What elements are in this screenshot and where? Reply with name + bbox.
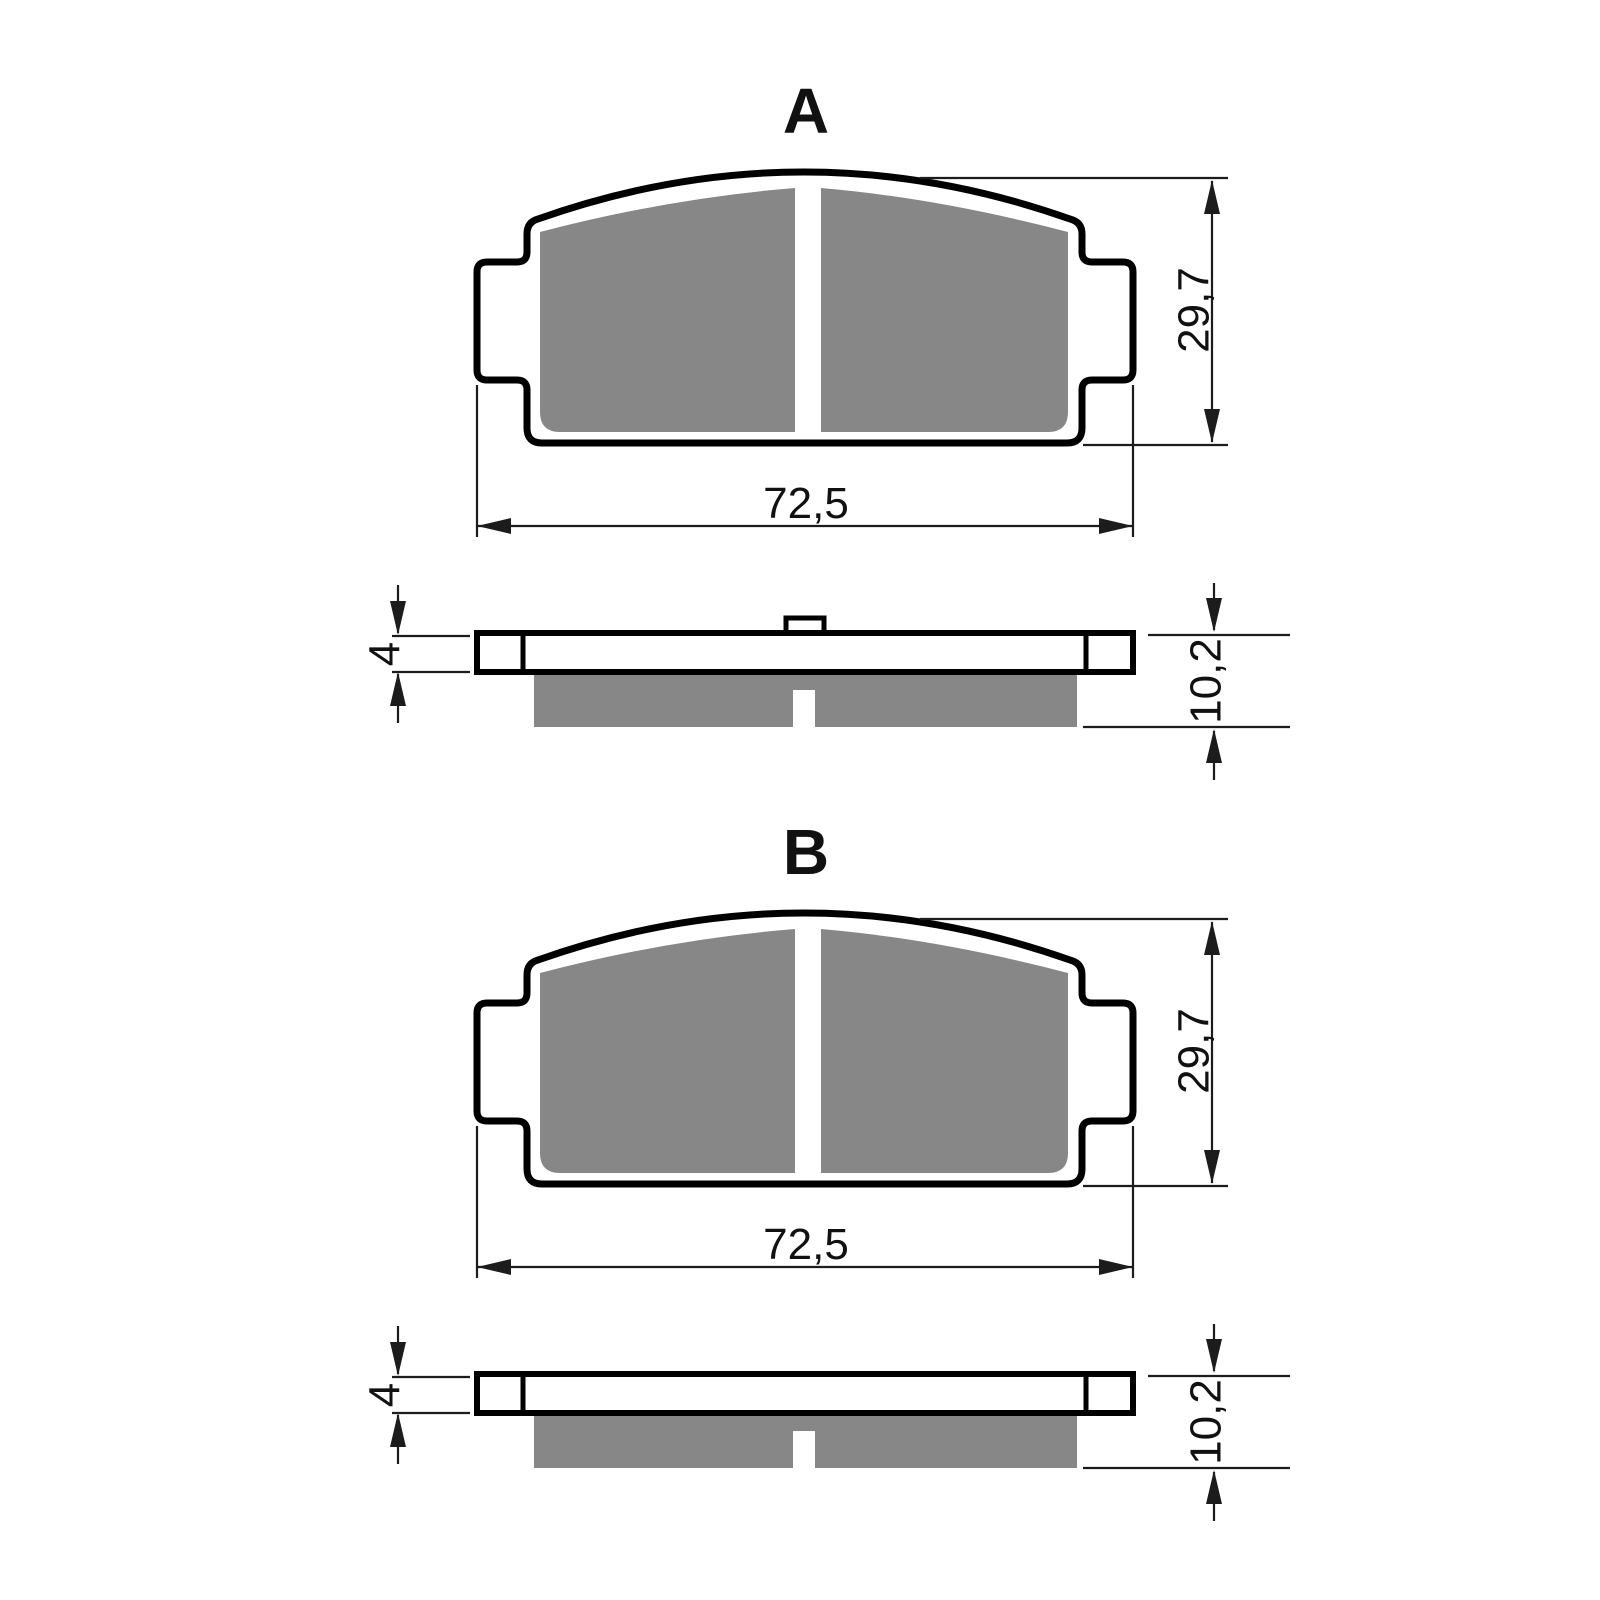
pad-a-backing-plate xyxy=(477,633,1133,672)
dim-b-backing: 4 xyxy=(360,1326,470,1464)
arrowhead-left xyxy=(477,518,511,534)
brake-pad-technical-drawing: A 29,7 72,5 xyxy=(0,0,1600,1600)
pad-b-backing-plate xyxy=(477,1374,1133,1413)
arrowhead-down xyxy=(390,601,406,635)
arrowhead-up xyxy=(390,1413,406,1447)
arrowhead-up xyxy=(390,672,406,706)
arrowhead-down xyxy=(1206,1339,1222,1373)
pad-a-friction-right xyxy=(821,188,1068,432)
section-b: B 29,7 72,5 xyxy=(360,816,1290,1521)
arrowhead-down xyxy=(1206,598,1222,632)
arrowhead-up xyxy=(1204,180,1220,214)
drawing-svg: A 29,7 72,5 xyxy=(0,0,1600,1600)
dim-a-overall: 10,2 xyxy=(1083,583,1290,780)
dim-a-backing: 4 xyxy=(360,585,470,723)
section-a-label: A xyxy=(783,75,829,147)
side-view-b xyxy=(477,1374,1133,1469)
dim-b-overall-text: 10,2 xyxy=(1181,1379,1230,1465)
pad-b-wear-groove xyxy=(793,1431,815,1469)
pad-a-friction-left xyxy=(540,188,795,432)
arrowhead-down xyxy=(1204,1150,1220,1184)
arrowhead-right xyxy=(1099,1259,1133,1275)
dim-a-width-text: 72,5 xyxy=(763,479,849,528)
dim-b-height-text: 29,7 xyxy=(1169,1008,1218,1094)
arrowhead-left xyxy=(477,1259,511,1275)
pad-b-friction-left xyxy=(540,929,795,1173)
dim-b-width-text: 72,5 xyxy=(763,1220,849,1269)
arrowhead-down xyxy=(1204,409,1220,443)
arrowhead-up xyxy=(1206,729,1222,763)
section-b-label: B xyxy=(783,816,829,888)
side-view-a xyxy=(477,618,1133,728)
arrowhead-down xyxy=(390,1342,406,1376)
dim-a-height-text: 29,7 xyxy=(1169,267,1218,353)
pad-b-friction-right xyxy=(821,929,1068,1173)
arrowhead-up xyxy=(1204,921,1220,955)
arrowhead-right xyxy=(1099,518,1133,534)
section-a: A 29,7 72,5 xyxy=(360,75,1290,780)
dim-a-backing-text: 4 xyxy=(360,642,409,666)
dim-a-overall-text: 10,2 xyxy=(1181,638,1230,724)
arrowhead-up xyxy=(1206,1470,1222,1504)
pad-a-wear-groove xyxy=(793,690,815,728)
dim-b-backing-text: 4 xyxy=(360,1383,409,1407)
dim-b-overall: 10,2 xyxy=(1083,1324,1290,1521)
